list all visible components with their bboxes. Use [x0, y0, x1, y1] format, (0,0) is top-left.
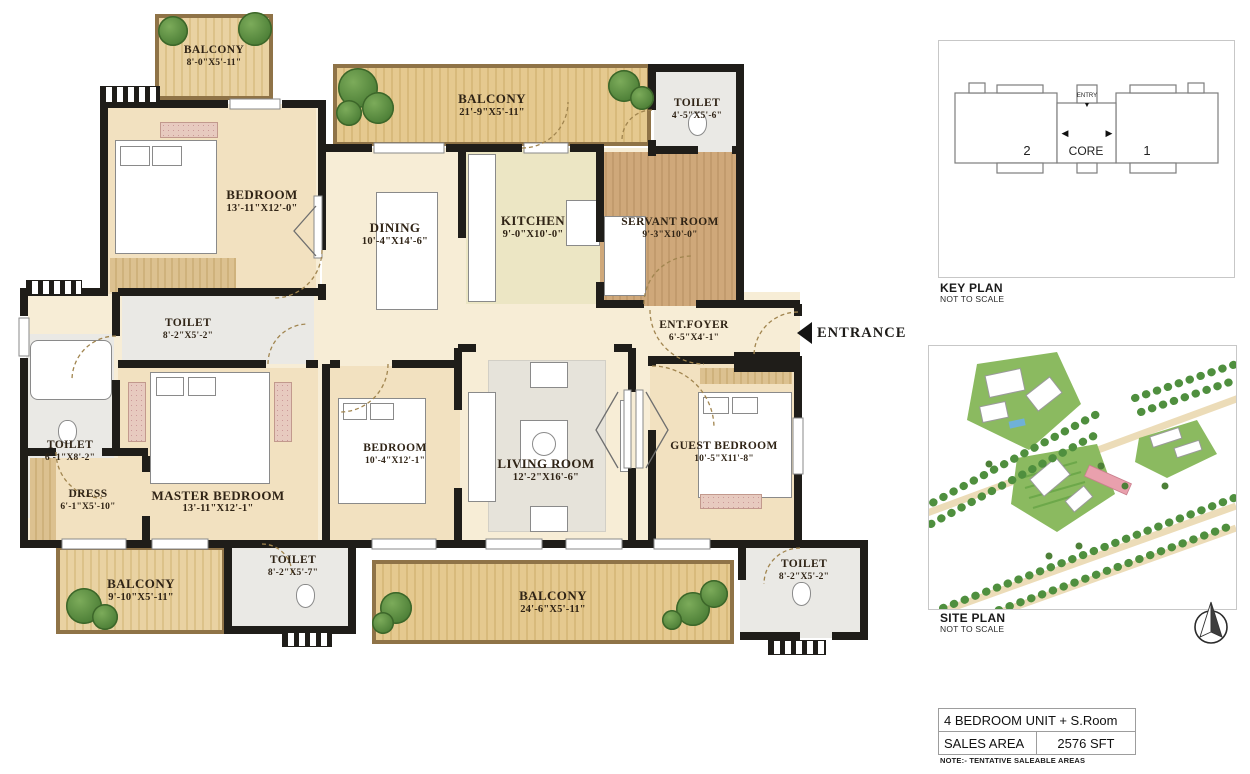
- unit-type-cell: 4 BEDROOM UNIT + S.Room: [939, 709, 1136, 732]
- core-left-arrow-icon: ◀: [1062, 128, 1069, 138]
- tree-icon: [92, 604, 118, 630]
- guest-wood-strip: [700, 368, 792, 384]
- room-name: TOILET: [163, 317, 213, 331]
- pillow-icon: [120, 146, 150, 166]
- room-name: BEDROOM: [226, 187, 297, 203]
- room-dims: 21'-9"X5'-11": [458, 107, 526, 120]
- key-plan-core-label: CORE: [1069, 144, 1104, 158]
- room-dims: 8'-2"X5'-7": [268, 568, 318, 579]
- bathtub-icon: [30, 340, 112, 400]
- key-plan-entry-label: ENTRY: [1077, 93, 1097, 99]
- room-dims: 6'-1"X5'-10": [60, 502, 115, 513]
- pillow-icon: [343, 403, 367, 420]
- room-dims: 12'-2"X16'-6": [497, 472, 594, 485]
- room-name: SERVANT ROOM: [621, 216, 719, 230]
- entry-down-arrow-icon: ▼: [1084, 102, 1091, 109]
- room-name: TOILET: [672, 97, 722, 111]
- key-plan-title: KEY PLAN: [940, 281, 1003, 295]
- room-name: GUEST BEDROOM: [670, 440, 778, 454]
- room-dims: 8'-2"X5'-2": [163, 331, 213, 342]
- tree-icon: [700, 580, 728, 608]
- room-guest-bedroom: GUEST BEDROOM10'-5"X11'-8": [650, 362, 798, 544]
- room-name: TOILET: [779, 558, 829, 572]
- room-toilet-bottom-left: TOILET8'-2"X5'-7": [230, 542, 356, 630]
- room-name: DINING: [362, 220, 428, 236]
- room-name: TOILET: [268, 554, 318, 568]
- wall-hatch: [100, 86, 160, 103]
- tree-icon: [630, 86, 654, 110]
- entrance-marker: ENTRANCE: [797, 322, 906, 344]
- site-plan-panel: [928, 345, 1237, 610]
- entrance-label: ENTRANCE: [817, 325, 906, 342]
- room-dims: 10'-4"X14'-6": [362, 236, 428, 249]
- wc-icon: [792, 582, 811, 606]
- vent-hatch: [768, 640, 826, 655]
- site-plan-illustration: [929, 346, 1236, 609]
- bedside-rug: [274, 382, 292, 442]
- pillow-icon: [732, 397, 758, 414]
- room-name: LIVING ROOM: [497, 456, 594, 472]
- pillow-icon: [370, 403, 394, 420]
- room-name: DRESS: [60, 488, 115, 502]
- room-dims: 9'-10"X5'-11": [107, 592, 175, 605]
- key-plan-panel: ENTRY ▼ ◀ ▶ 2 CORE 1: [938, 40, 1235, 278]
- room-dims: 8'-0"X5'-11": [184, 58, 244, 69]
- table-row: SALES AREA 2576 SFT: [939, 732, 1136, 755]
- room-dims: 9'-0"X10'-0": [501, 229, 565, 242]
- stove-icon: [566, 200, 600, 246]
- bedroom-closet-strip: [110, 258, 236, 292]
- key-plan-unit1-label: 1: [1143, 143, 1150, 158]
- site-plan-title: SITE PLAN: [940, 611, 1005, 625]
- armchair-icon: [530, 506, 568, 532]
- sofa-icon: [468, 392, 496, 502]
- key-plan-scale-note: NOT TO SCALE: [940, 294, 1004, 304]
- table-row: 4 BEDROOM UNIT + S.Room: [939, 709, 1136, 732]
- room-name: BEDROOM: [363, 442, 427, 456]
- room-dims: 6'-5"X4'-1": [659, 333, 729, 344]
- tree-icon: [336, 100, 362, 126]
- tentative-area-note: NOTE:- TENTATIVE SALEABLE AREAS: [940, 756, 1085, 765]
- key-plan-drawing: ENTRY ▼ ◀ ▶ 2 CORE 1: [939, 41, 1234, 277]
- core-right-arrow-icon: ▶: [1106, 128, 1113, 138]
- room-dims: 6'-1"X8'-2": [45, 453, 95, 464]
- armchair-icon: [530, 362, 568, 388]
- room-dims: 4'-5"X5'-6": [672, 111, 722, 122]
- pillow-icon: [152, 146, 182, 166]
- entrance-arrow-icon: [797, 322, 812, 344]
- room-dims: 8'-2"X5'-2": [779, 572, 829, 583]
- room-dims: 10'-5"X11'-8": [670, 454, 778, 465]
- room-ent-foyer: ENT.FOYER6'-5"X4'-1": [644, 300, 744, 364]
- sales-area-label-cell: SALES AREA: [939, 732, 1037, 755]
- room-dims: 9'-3"X10'-0": [621, 230, 719, 241]
- bedside-rug: [700, 494, 762, 509]
- wc-icon: [296, 584, 315, 608]
- floor-plan-page: BALCONY8'-0"X5'-11" BEDROOM13'-11"X12'-0…: [0, 0, 1250, 774]
- dining-table: [376, 192, 438, 310]
- tree-icon: [662, 610, 682, 630]
- room-name: MASTER BEDROOM: [151, 488, 284, 504]
- bedside-rug: [160, 122, 218, 138]
- room-toilet-top-right: TOILET4'-5"X5'-6": [654, 68, 740, 152]
- vent-hatch: [282, 632, 332, 647]
- north-compass-icon: [1184, 596, 1238, 654]
- key-plan-unit2-label: 2: [1023, 143, 1030, 158]
- wall-hatch: [26, 280, 82, 295]
- tv-panel: [620, 400, 630, 472]
- site-plan-scale-note: NOT TO SCALE: [940, 624, 1004, 634]
- tree-icon: [372, 612, 394, 634]
- room-dims: 10'-4"X12'-1": [363, 456, 427, 467]
- table-decor: [532, 432, 556, 456]
- bedside-rug: [128, 382, 146, 442]
- sales-area-value-cell: 2576 SFT: [1036, 732, 1135, 755]
- summary-table: 4 BEDROOM UNIT + S.Room SALES AREA 2576 …: [938, 708, 1136, 755]
- room-dims: 13'-11"X12'-1": [151, 503, 284, 516]
- tree-icon: [158, 16, 188, 46]
- kitchen-counter: [468, 154, 496, 302]
- pillow-icon: [703, 397, 729, 414]
- room-name: BALCONY: [519, 588, 587, 604]
- room-dims: 13'-11"X12'-0": [226, 203, 297, 216]
- room-name: BALCONY: [458, 91, 526, 107]
- tree-icon: [362, 92, 394, 124]
- dress-wood-strip: [30, 458, 56, 544]
- room-name: BALCONY: [184, 44, 244, 58]
- room-name: BALCONY: [107, 576, 175, 592]
- room-toilet-master: TOILET8'-2"X5'-2": [122, 296, 314, 364]
- tree-icon: [238, 12, 272, 46]
- room-dims: 24'-6"X5'-11": [519, 604, 587, 617]
- room-name: ENT.FOYER: [659, 319, 729, 333]
- room-name: TOILET: [45, 439, 95, 453]
- pillow-icon: [188, 377, 216, 396]
- room-name: KITCHEN: [501, 213, 565, 229]
- pillow-icon: [156, 377, 184, 396]
